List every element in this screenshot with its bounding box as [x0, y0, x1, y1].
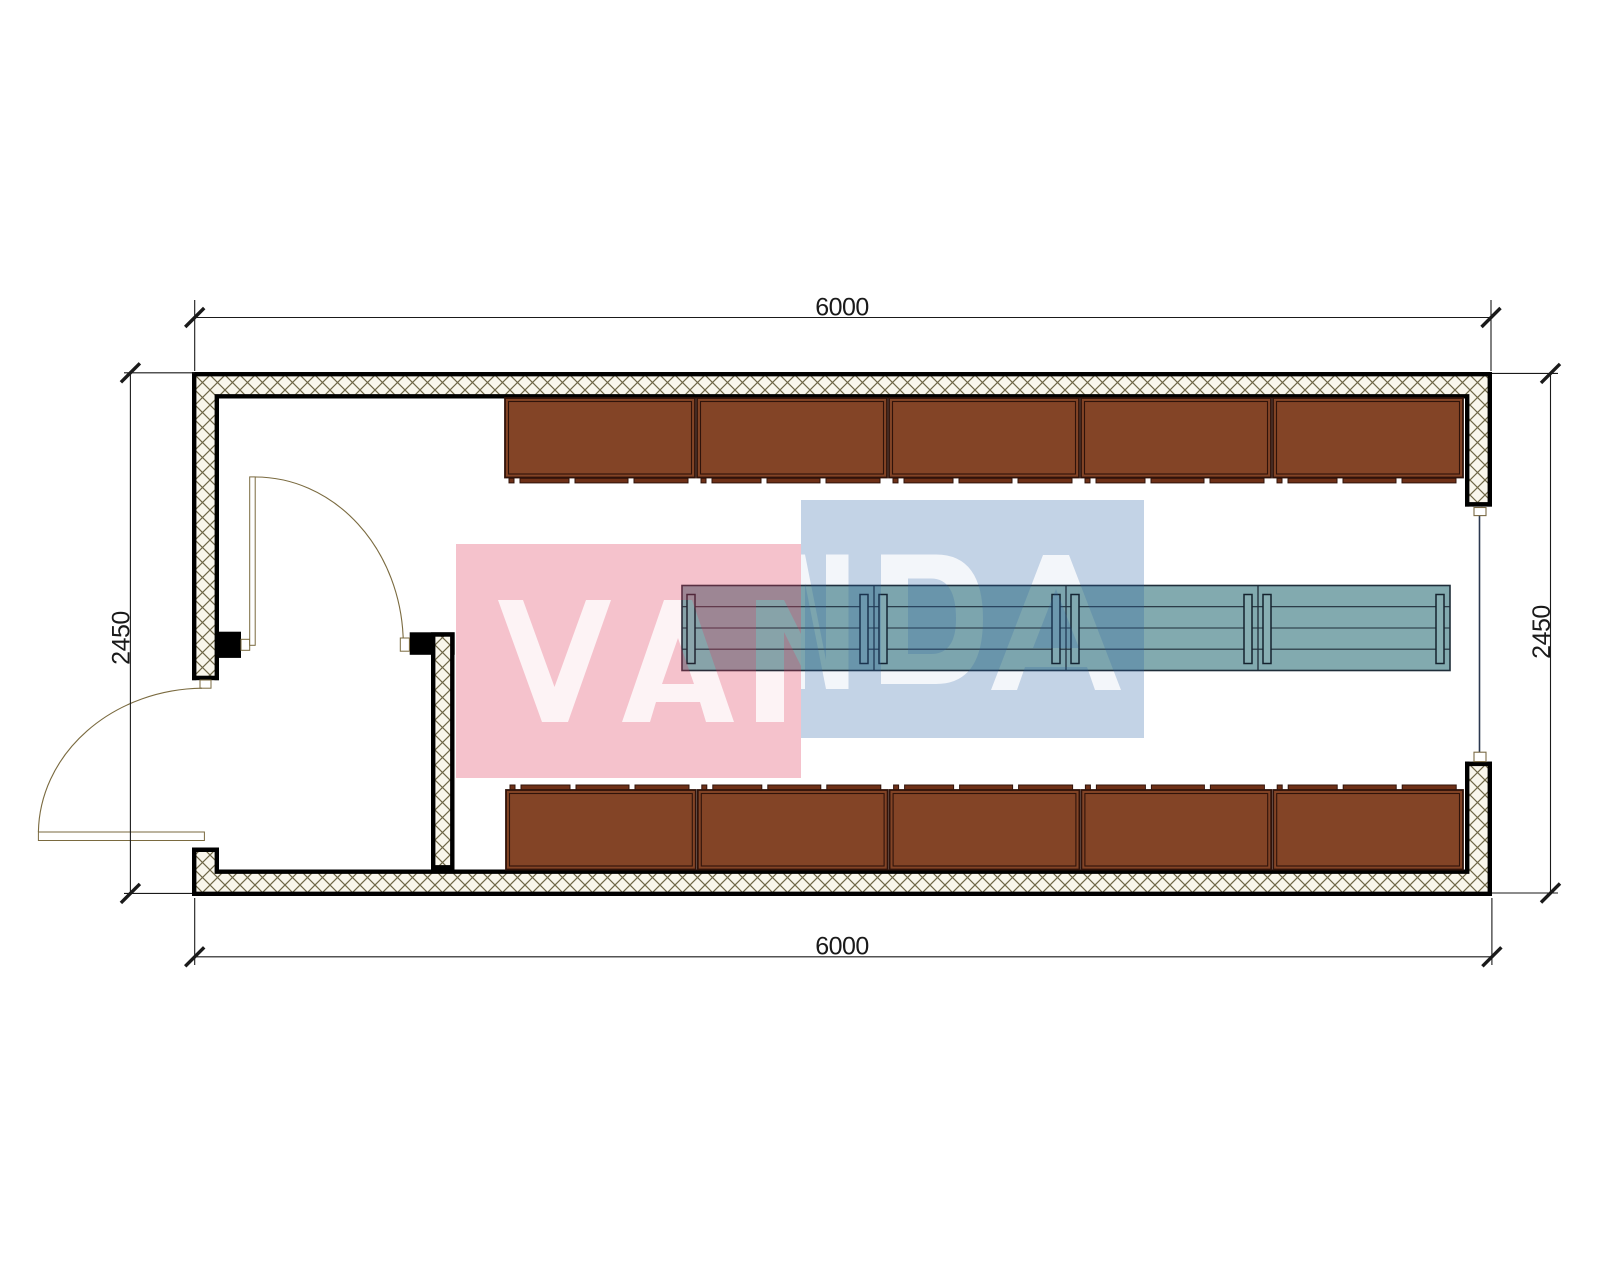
svg-text:6000: 6000 — [815, 294, 869, 322]
svg-text:6000: 6000 — [815, 933, 869, 961]
svg-text:2450: 2450 — [1528, 605, 1556, 659]
svg-text:2450: 2450 — [107, 611, 135, 665]
